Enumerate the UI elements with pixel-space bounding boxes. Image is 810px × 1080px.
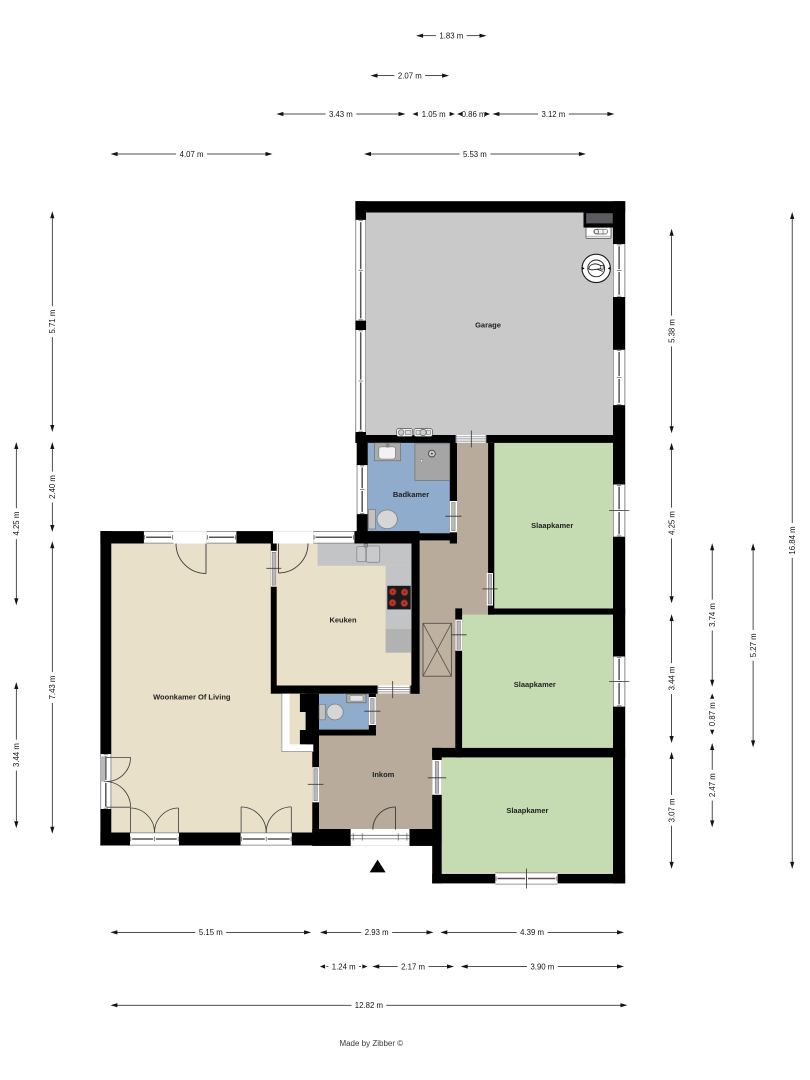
- svg-text:Woonkamer Of Living: Woonkamer Of Living: [153, 693, 231, 702]
- svg-text:12.82 m: 12.82 m: [355, 1001, 383, 1010]
- svg-text:4.25 m: 4.25 m: [667, 511, 676, 535]
- svg-text:3.07 m: 3.07 m: [667, 798, 676, 822]
- svg-text:0.87 m: 0.87 m: [708, 702, 717, 726]
- svg-text:4.07 m: 4.07 m: [180, 150, 204, 159]
- svg-text:2.07 m: 2.07 m: [398, 71, 422, 80]
- svg-text:5.38 m: 5.38 m: [667, 319, 676, 343]
- svg-text:Slaapkamer: Slaapkamer: [506, 806, 548, 815]
- svg-text:16.84 m: 16.84 m: [788, 526, 797, 554]
- svg-text:3.74 m: 3.74 m: [708, 603, 717, 627]
- svg-text:Made by Zibber ©: Made by Zibber ©: [339, 1039, 403, 1048]
- svg-text:7.43 m: 7.43 m: [48, 676, 57, 700]
- svg-text:3.12 m: 3.12 m: [541, 110, 565, 119]
- svg-text:3.44 m: 3.44 m: [667, 667, 676, 691]
- svg-text:Keuken: Keuken: [329, 616, 357, 625]
- svg-text:2.17 m: 2.17 m: [401, 962, 425, 971]
- svg-text:0.86 m: 0.86 m: [462, 110, 486, 119]
- svg-text:1.24 m: 1.24 m: [332, 962, 356, 971]
- svg-text:2.93 m: 2.93 m: [365, 928, 389, 937]
- svg-text:3.90 m: 3.90 m: [530, 962, 554, 971]
- svg-text:Slaapkamer: Slaapkamer: [514, 680, 556, 689]
- svg-text:1.83 m: 1.83 m: [439, 32, 463, 41]
- svg-text:2.47 m: 2.47 m: [708, 773, 717, 797]
- svg-text:Inkom: Inkom: [372, 770, 394, 779]
- svg-text:1.05 m: 1.05 m: [422, 110, 446, 119]
- svg-text:Badkamer: Badkamer: [393, 490, 429, 499]
- svg-text:5.27 m: 5.27 m: [749, 633, 758, 657]
- svg-text:5.71 m: 5.71 m: [48, 310, 57, 334]
- svg-text:Slaapkamer: Slaapkamer: [531, 521, 573, 530]
- svg-text:4.39 m: 4.39 m: [520, 928, 544, 937]
- svg-text:3.44 m: 3.44 m: [12, 743, 21, 767]
- svg-text:5.53 m: 5.53 m: [463, 150, 487, 159]
- svg-text:Garage: Garage: [475, 321, 501, 330]
- svg-text:3.43 m: 3.43 m: [329, 110, 353, 119]
- svg-text:5.15 m: 5.15 m: [199, 928, 223, 937]
- svg-text:4.25 m: 4.25 m: [12, 512, 21, 536]
- svg-text:2.40 m: 2.40 m: [48, 475, 57, 499]
